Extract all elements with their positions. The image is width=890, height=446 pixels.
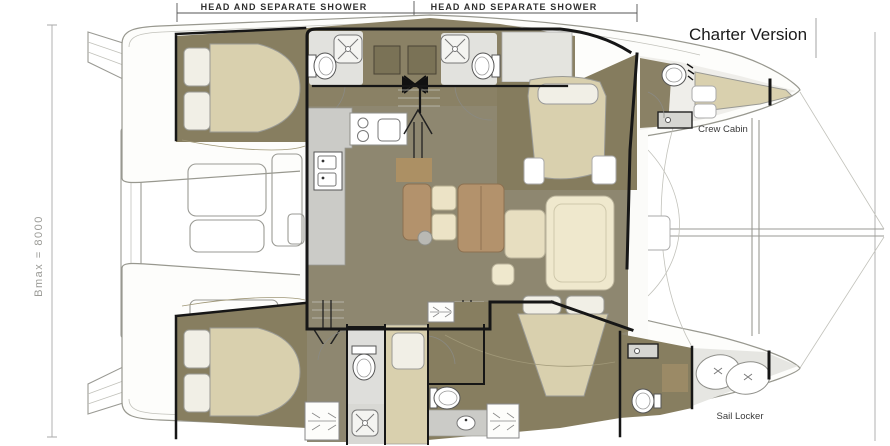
floorplan-drawing: HEAD AND SEPARATE SHOWER HEAD AND SEPARA… xyxy=(0,0,890,446)
sink-icon xyxy=(658,112,692,128)
head-shower-label-left: HEAD AND SEPARATE SHOWER xyxy=(201,2,368,12)
sink-bowl-icon xyxy=(358,118,368,128)
left-dimension-line xyxy=(47,25,57,437)
ottoman xyxy=(492,264,514,285)
toilet-icon xyxy=(472,53,500,79)
berth-pillow xyxy=(392,333,424,369)
pouf xyxy=(418,231,432,245)
louvered-locker xyxy=(487,404,519,438)
side-table xyxy=(432,214,456,240)
salon-sofa xyxy=(458,184,504,252)
shower-icon xyxy=(441,35,469,63)
version-title: Charter Version xyxy=(689,25,807,44)
catamaran-floorplan: HEAD AND SEPARATE SHOWER HEAD AND SEPARA… xyxy=(0,0,890,446)
beam-dimension-label: Bmax = 8000 xyxy=(33,215,45,297)
wet-bar-sinks xyxy=(314,152,342,190)
louvered-locker xyxy=(305,402,339,440)
shower-icon xyxy=(352,410,378,436)
sink-icon xyxy=(457,416,475,430)
galley-sink-stove xyxy=(350,113,407,145)
side-table xyxy=(432,186,456,210)
forward-settee xyxy=(546,196,614,290)
shower-icon xyxy=(334,35,362,63)
sink-icon xyxy=(628,344,658,358)
port-wardrobe xyxy=(502,32,572,82)
louvered-locker xyxy=(428,302,454,322)
corner-seat xyxy=(505,210,545,258)
rug xyxy=(396,158,432,182)
crew-cabin-label: Crew Cabin xyxy=(698,124,748,135)
head-shower-label-right: HEAD AND SEPARATE SHOWER xyxy=(431,2,598,12)
port-fwd-cabin-bed xyxy=(524,76,616,184)
stove-icon xyxy=(378,119,400,141)
sink-bowl-icon xyxy=(358,131,369,142)
toilet-icon xyxy=(352,346,376,380)
toilet-icon xyxy=(430,387,460,409)
mat xyxy=(662,364,688,392)
toilet-icon xyxy=(308,53,336,79)
sail-locker-label: Sail Locker xyxy=(717,411,764,422)
